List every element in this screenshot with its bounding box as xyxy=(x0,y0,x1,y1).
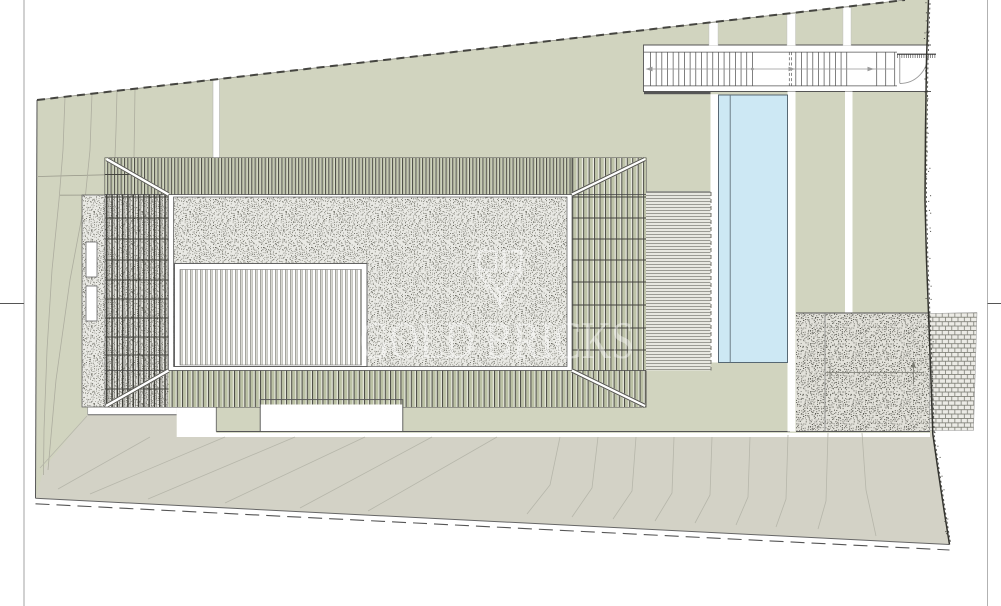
svg-text:GOLD BRICKS: GOLD BRICKS xyxy=(360,312,634,370)
